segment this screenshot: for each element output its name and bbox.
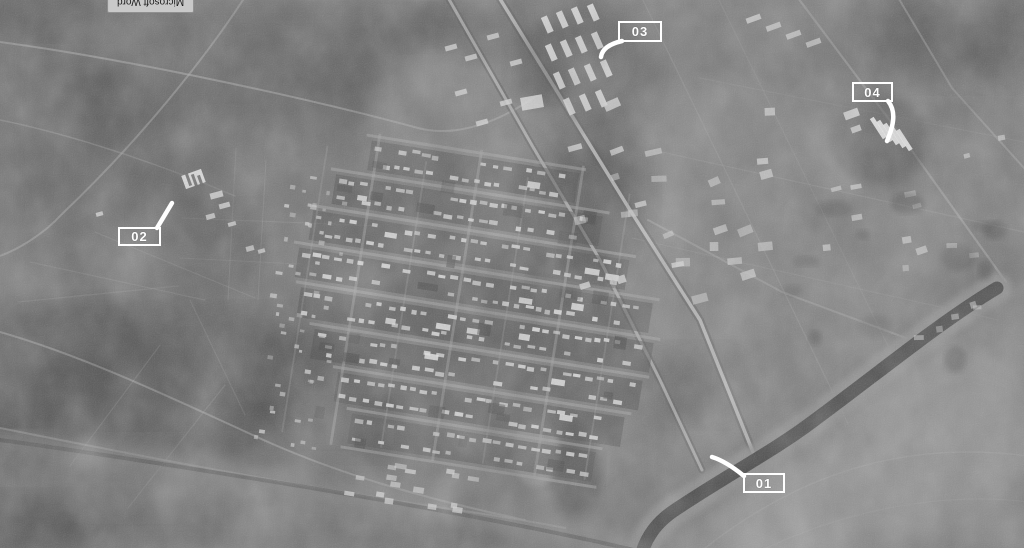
callout-03: 03 xyxy=(618,21,662,42)
taskbar-tooltip: Microsoft Word xyxy=(107,0,194,13)
screenshot-stage: 01020304 Microsoft Word xyxy=(0,0,1024,548)
callout-02: 02 xyxy=(118,227,161,246)
callout-04: 04 xyxy=(852,82,893,102)
callout-01: 01 xyxy=(743,473,785,493)
